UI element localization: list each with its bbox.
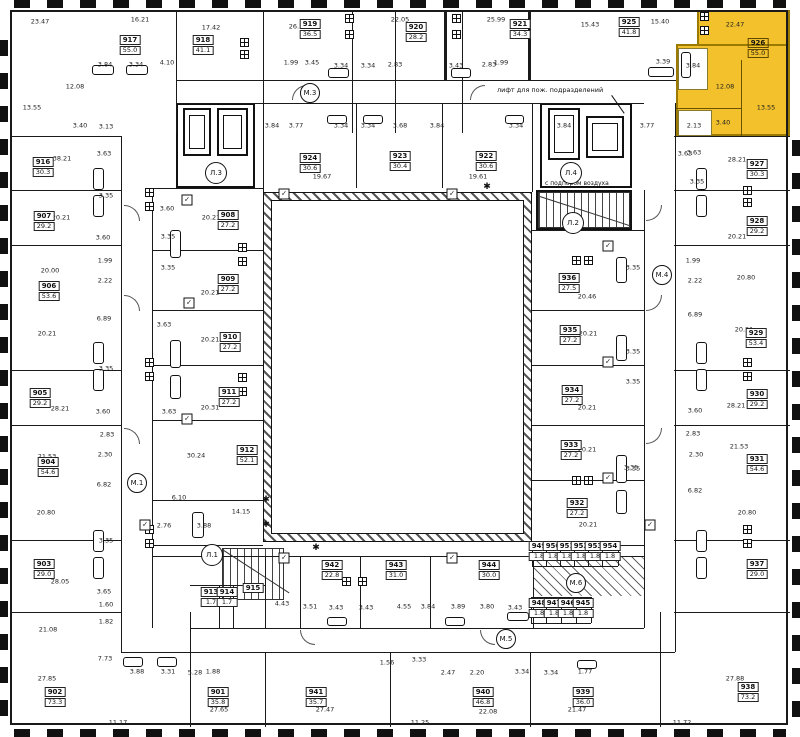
stove-icon xyxy=(238,257,247,266)
stove-icon xyxy=(743,372,752,381)
unit-label-917[interactable]: 91755.0 xyxy=(120,35,141,55)
room-area: 20.80 xyxy=(737,275,756,282)
unit-area: 27.2 xyxy=(561,451,582,460)
unit-label-934[interactable]: 93427.2 xyxy=(562,385,583,405)
unit-label-901[interactable]: 90135.8 xyxy=(208,687,229,707)
stove-icon xyxy=(145,539,154,548)
bathtub-icon xyxy=(123,657,143,667)
room-area: 6.89 xyxy=(688,312,702,319)
unit-label-954[interactable]: 9541.8 xyxy=(600,541,621,561)
room-area: 3.89 xyxy=(451,604,465,611)
room-area: 30.24 xyxy=(187,453,206,460)
unit-label-921[interactable]: 92134.3 xyxy=(510,19,531,39)
stove-icon xyxy=(572,256,581,265)
wall-segment xyxy=(176,80,676,81)
unit-label-906[interactable]: 90653.6 xyxy=(39,281,60,301)
unit-area: 55.0 xyxy=(120,46,141,55)
unit-area: 31.0 xyxy=(386,571,407,580)
unit-label-945[interactable]: 9451.8 xyxy=(573,598,594,618)
room-area: 3.80 xyxy=(480,604,494,611)
unit-label-929[interactable]: 92953.4 xyxy=(746,328,767,348)
room-area: 3.43 xyxy=(329,605,343,612)
room-area: 3.77 xyxy=(289,123,303,130)
unit-label-925[interactable]: 92541.8 xyxy=(619,17,640,37)
m-mark-М-5: М.5 xyxy=(496,629,516,649)
room-area: 3.13 xyxy=(99,124,113,131)
unit-area: 41.8 xyxy=(619,28,640,37)
unit-number: 932 xyxy=(567,498,588,508)
room-area: 3.84 xyxy=(686,63,700,70)
unit-label-923[interactable]: 92330.4 xyxy=(390,151,411,171)
room-area: 1.77 xyxy=(578,669,592,676)
room-area: 3.65 xyxy=(97,589,111,596)
room-area: 20.21 xyxy=(578,405,597,412)
unit-label-936[interactable]: 93627.5 xyxy=(559,273,580,293)
unit-number: 941 xyxy=(306,687,327,697)
unit-label-916[interactable]: 91630.3 xyxy=(33,157,54,177)
unit-area: 54.6 xyxy=(38,468,59,477)
bathtub-icon xyxy=(451,68,471,78)
wall-segment xyxy=(674,136,790,137)
room-area: 7.73 xyxy=(98,656,112,663)
unit-number: 911 xyxy=(219,387,240,397)
room-area: 3.60 xyxy=(96,409,110,416)
unit-label-942[interactable]: 94222.8 xyxy=(322,560,343,580)
wall-segment xyxy=(674,540,790,541)
stove-icon xyxy=(743,539,752,548)
unit-area: 29.2 xyxy=(747,400,768,409)
unit-area: 27.2 xyxy=(219,398,240,407)
unit-number: 924 xyxy=(300,153,321,163)
unit-number: 903 xyxy=(34,559,55,569)
bathtub-icon xyxy=(445,617,465,626)
room-area: 1.56 xyxy=(380,660,394,667)
room-area: 16.21 xyxy=(131,17,150,24)
room-area: 4.55 xyxy=(397,604,411,611)
unit-number: 918 xyxy=(193,35,214,45)
courtyard-void xyxy=(271,200,524,534)
unit-number: 902 xyxy=(45,687,66,697)
room-area: 3.35 xyxy=(99,366,113,373)
unit-number: 910 xyxy=(220,332,241,342)
unit-label-910[interactable]: 91027.2 xyxy=(220,332,241,352)
stove-icon xyxy=(345,14,354,23)
room-area: 20.80 xyxy=(37,510,56,517)
wall-segment xyxy=(442,103,443,188)
m-mark-М-4: М.4 xyxy=(652,265,672,285)
m-mark-М-3: М.3 xyxy=(300,83,320,103)
room-area: 1.99 xyxy=(98,258,112,265)
stove-icon xyxy=(700,26,709,35)
wall-segment xyxy=(674,612,790,613)
unit-number: 912 xyxy=(237,445,258,455)
room-area: 3.43 xyxy=(359,605,373,612)
wall-segment xyxy=(152,188,263,189)
room-area: 3.60 xyxy=(688,408,702,415)
unit-label-922[interactable]: 92230.6 xyxy=(476,151,497,171)
room-area: 28.21 xyxy=(727,403,746,410)
unit-area: 27.2 xyxy=(218,221,239,230)
wall-segment xyxy=(356,103,357,188)
unit-area: 30.3 xyxy=(747,170,768,179)
unit-number: 945 xyxy=(573,598,594,608)
bathtub-icon xyxy=(696,530,707,552)
unit-number: 914 xyxy=(217,587,238,597)
wall-segment xyxy=(152,500,263,501)
stove-icon xyxy=(238,373,247,382)
unit-area: 1.7 xyxy=(217,598,238,607)
wall-segment xyxy=(360,556,361,628)
unit-area: 53.6 xyxy=(39,292,60,301)
unit-label-937[interactable]: 93729.0 xyxy=(747,559,768,579)
fire-elevator-note: лифт для пож. подразделений xyxy=(497,86,603,94)
window-ticks-top xyxy=(14,0,786,8)
stove-icon xyxy=(743,525,752,534)
room-area: 20.21 xyxy=(201,290,220,297)
asterisk-icon: ✱ xyxy=(483,182,491,192)
bathtub-icon xyxy=(648,67,674,77)
unit-label-932[interactable]: 93227.2 xyxy=(567,498,588,518)
unit-area: 22.8 xyxy=(322,571,343,580)
room-area: 20.21 xyxy=(38,331,57,338)
wall-segment xyxy=(152,310,263,311)
unit-area: 27.2 xyxy=(567,509,588,518)
room-area: 23.47 xyxy=(31,19,50,26)
unit-label-933[interactable]: 93327.2 xyxy=(561,440,582,460)
unit-number: 917 xyxy=(120,35,141,45)
stove-icon xyxy=(145,202,154,211)
unit-number: 927 xyxy=(747,159,768,169)
wall-segment xyxy=(532,188,533,192)
wall-segment xyxy=(675,103,676,652)
stair-mark-Л-3: Л.3 xyxy=(205,162,227,184)
room-area: 3.43 xyxy=(449,63,463,70)
room-area: 11.25 xyxy=(411,720,430,727)
wall-segment xyxy=(10,425,121,426)
unit-label-908[interactable]: 90827.2 xyxy=(218,210,239,230)
room-area: 3.35 xyxy=(626,379,640,386)
unit-number: 937 xyxy=(747,559,768,569)
bathtub-icon xyxy=(507,612,529,621)
bathtub-icon xyxy=(696,342,707,364)
room-area: 2.13 xyxy=(687,123,701,130)
unit-area: 34.3 xyxy=(510,30,531,39)
room-area: 20.21 xyxy=(728,234,747,241)
room-area: 22.08 xyxy=(479,709,498,716)
room-area: 3.34 xyxy=(515,669,529,676)
room-area: 3.34 xyxy=(334,63,348,70)
room-area: 2.47 xyxy=(441,670,455,677)
room-area: 6.82 xyxy=(688,488,702,495)
check-icon: ✓ xyxy=(603,357,614,368)
wall-segment xyxy=(674,425,790,426)
room-area: 3.84 xyxy=(430,123,444,130)
window-ticks-bottom xyxy=(14,729,786,737)
unit-number: 934 xyxy=(562,385,583,395)
wall-segment xyxy=(674,190,790,191)
room-area: 20.80 xyxy=(738,510,757,517)
room-area: 20.31 xyxy=(201,405,220,412)
stove-icon xyxy=(452,30,461,39)
wall-segment xyxy=(352,10,353,133)
room-area: 38.21 xyxy=(53,156,72,163)
unit-label-919[interactable]: 91936.5 xyxy=(300,19,321,39)
check-icon: ✓ xyxy=(279,189,290,200)
wall-segment xyxy=(531,623,591,624)
wall-segment xyxy=(644,190,645,628)
unit-number: 943 xyxy=(386,560,407,570)
unit-area: 27.2 xyxy=(218,285,239,294)
unit-label-927[interactable]: 92730.3 xyxy=(747,159,768,179)
room-area: 3.84 xyxy=(557,123,571,130)
room-area: 3.68 xyxy=(393,123,407,130)
check-icon: ✓ xyxy=(184,298,195,309)
room-area: 20.46 xyxy=(578,294,597,301)
unit-number: 942 xyxy=(322,560,343,570)
unit-label-912[interactable]: 91252.1 xyxy=(237,445,258,465)
stove-icon xyxy=(145,188,154,197)
stair-mark-Л-4: Л.4 xyxy=(560,162,582,184)
asterisk-icon: ✱ xyxy=(262,495,270,505)
room-area: 28.21 xyxy=(51,406,70,413)
unit-label-941[interactable]: 94135.7 xyxy=(306,687,327,707)
check-icon: ✓ xyxy=(140,520,151,531)
bathtub-icon xyxy=(93,342,104,364)
stove-icon xyxy=(743,198,752,207)
room-area: 15.40 xyxy=(651,19,670,26)
unit-area: 30.6 xyxy=(300,164,321,173)
room-area: 3.51 xyxy=(303,604,317,611)
room-area: 1.99 xyxy=(284,60,298,67)
stair-mark-Л-2: Л.2 xyxy=(562,212,584,234)
room-area: 3.34 xyxy=(129,62,143,69)
room-area: 3.45 xyxy=(305,60,319,67)
wall-segment xyxy=(444,10,447,80)
unit-area: 1.8 xyxy=(600,552,621,561)
wall-segment xyxy=(121,136,122,652)
room-area: 2.83 xyxy=(388,62,402,69)
unit-number: 922 xyxy=(476,151,497,161)
bathtub-icon xyxy=(696,557,707,579)
room-area: 5.28 xyxy=(188,670,202,677)
unit-label-911[interactable]: 91127.2 xyxy=(219,387,240,407)
room-area: 2.30 xyxy=(689,452,703,459)
unit-label-928[interactable]: 92829.2 xyxy=(747,216,768,236)
unit-area: 36.0 xyxy=(573,698,594,707)
room-area: 3.40 xyxy=(73,123,87,130)
unit-label-920[interactable]: 92028.2 xyxy=(406,22,427,42)
unit-label-944[interactable]: 94430.0 xyxy=(479,560,500,580)
wall-segment xyxy=(532,310,644,311)
unit-label-940[interactable]: 94046.8 xyxy=(473,687,494,707)
room-area: 1.99 xyxy=(686,258,700,265)
unit-number: 909 xyxy=(218,274,239,284)
room-area: 27.47 xyxy=(316,707,335,714)
window-ticks-left xyxy=(0,40,8,730)
room-area: 20.21 xyxy=(579,331,598,338)
check-icon: ✓ xyxy=(279,553,290,564)
wall-segment xyxy=(263,188,264,192)
room-area: 3.60 xyxy=(160,206,174,213)
room-area: 2.22 xyxy=(688,278,702,285)
unit-label-905[interactable]: 90529.2 xyxy=(30,388,51,408)
wall-segment xyxy=(10,136,121,137)
wall-segment xyxy=(532,365,644,366)
room-area: 21.47 xyxy=(568,707,587,714)
room-area: 3.34 xyxy=(544,670,558,677)
room-area: 3.35 xyxy=(624,465,638,472)
wall-segment xyxy=(532,566,618,567)
bathtub-icon xyxy=(157,657,177,667)
wall-segment xyxy=(530,652,531,727)
unit-number: 931 xyxy=(747,454,768,464)
unit-label-931[interactable]: 93154.6 xyxy=(747,454,768,474)
unit-area: 29.2 xyxy=(747,227,768,236)
bathtub-icon xyxy=(170,340,181,368)
unit-area: 29.0 xyxy=(747,570,768,579)
asterisk-icon: ✱ xyxy=(262,520,270,530)
bathtub-icon xyxy=(93,557,104,579)
unit-label-914[interactable]: 9141.7 xyxy=(217,587,238,607)
unit-area: 46.8 xyxy=(473,698,494,707)
room-area: 2.83 xyxy=(100,432,114,439)
unit-number: 944 xyxy=(479,560,500,570)
wall-segment xyxy=(121,652,675,653)
room-area: 27.85 xyxy=(38,676,57,683)
room-area: 3.84 xyxy=(98,62,112,69)
room-area: 20.21 xyxy=(52,215,71,222)
wall-segment xyxy=(190,628,644,629)
unit-number: 920 xyxy=(406,22,427,32)
room-area: 1.60 xyxy=(99,602,113,609)
unit-number: 905 xyxy=(30,388,51,398)
unit-label-918[interactable]: 91841.1 xyxy=(193,35,214,55)
unit-label-907[interactable]: 90729.2 xyxy=(34,211,55,231)
room-area: 3.34 xyxy=(334,123,348,130)
room-area: 3.35 xyxy=(99,538,113,545)
room-area: 3.88 xyxy=(130,669,144,676)
unit-label-930[interactable]: 93029.2 xyxy=(747,389,768,409)
wall-segment xyxy=(395,10,396,133)
unit-number: 907 xyxy=(34,211,55,221)
room-area: 3.35 xyxy=(626,265,640,272)
unit-number: 954 xyxy=(600,541,621,551)
wall-segment xyxy=(265,556,266,628)
check-icon: ✓ xyxy=(645,520,656,531)
unit-number: 901 xyxy=(208,687,229,697)
stove-icon xyxy=(584,476,593,485)
stove-icon xyxy=(145,358,154,367)
wall-segment xyxy=(10,245,121,246)
room-area: 6.89 xyxy=(97,316,111,323)
unit-label-935[interactable]: 93527.2 xyxy=(560,325,581,345)
stove-icon xyxy=(240,50,249,59)
bathtub-icon xyxy=(170,375,181,399)
unit-area: 30.0 xyxy=(479,571,500,580)
room-area: 3.31 xyxy=(161,669,175,676)
unit-number: 904 xyxy=(38,457,59,467)
stove-icon xyxy=(358,577,367,586)
courtyard xyxy=(263,192,532,542)
wall-segment xyxy=(532,103,533,192)
room-area: 13.55 xyxy=(23,105,42,112)
unit-label-902[interactable]: 90273.3 xyxy=(45,687,66,707)
unit-area: 27.2 xyxy=(562,396,583,405)
room-area: 14.15 xyxy=(232,509,251,516)
room-area: 3.35 xyxy=(626,349,640,356)
room-area: 3.35 xyxy=(161,265,175,272)
unit-number: 940 xyxy=(473,687,494,697)
room-area: 4.10 xyxy=(160,60,174,67)
room-area: 2.30 xyxy=(98,452,112,459)
unit-number: 919 xyxy=(300,19,321,29)
room-area: 21.08 xyxy=(39,627,58,634)
unit-label-909[interactable]: 90927.2 xyxy=(218,274,239,294)
bathtub-icon xyxy=(696,369,707,391)
unit-label-939[interactable]: 93936.0 xyxy=(573,687,594,707)
unit-number: 923 xyxy=(390,151,411,161)
room-area: 3.39 xyxy=(656,59,670,66)
unit-number: 908 xyxy=(218,210,239,220)
unit-number: 929 xyxy=(746,328,767,338)
stove-icon xyxy=(345,30,354,39)
room-area: 3.40 xyxy=(716,120,730,127)
wall-segment xyxy=(152,420,263,421)
elevator-shaft xyxy=(548,108,580,160)
unit-number: 936 xyxy=(559,273,580,283)
stove-icon xyxy=(238,387,247,396)
unit-label-915[interactable]: 915 xyxy=(243,583,264,593)
wall-segment xyxy=(10,612,121,613)
unit-label-904[interactable]: 90454.6 xyxy=(38,457,59,477)
stove-icon xyxy=(240,38,249,47)
unit-area: 52.1 xyxy=(237,456,258,465)
unit-number: 925 xyxy=(619,17,640,27)
room-area: 2.22 xyxy=(98,278,112,285)
stove-icon xyxy=(572,476,581,485)
wall-segment xyxy=(176,10,177,133)
m-mark-М-1: М.1 xyxy=(127,473,147,493)
unit-label-926[interactable]: 92655.0 xyxy=(748,38,769,58)
room-area: 2.83 xyxy=(686,431,700,438)
unit-number: 928 xyxy=(747,216,768,226)
unit-area: 35.7 xyxy=(306,698,327,707)
room-area: 11.72 xyxy=(673,720,692,727)
check-icon: ✓ xyxy=(182,414,193,425)
unit-number: 939 xyxy=(573,687,594,697)
floor-plan: лифт для пож. подразделений с подпором в… xyxy=(0,0,800,737)
elevator-shaft xyxy=(586,116,624,158)
unit-area: 30.4 xyxy=(390,162,411,171)
room-area: 27.65 xyxy=(210,707,229,714)
unit-label-903[interactable]: 90329.0 xyxy=(34,559,55,579)
unit-area: 54.6 xyxy=(747,465,768,474)
room-area: 22.47 xyxy=(726,22,745,29)
window-ticks-right xyxy=(792,140,800,730)
unit-label-943[interactable]: 94331.0 xyxy=(386,560,407,580)
unit-label-924[interactable]: 92430.6 xyxy=(300,153,321,173)
unit-number: 933 xyxy=(561,440,582,450)
room-area: 19.67 xyxy=(313,174,332,181)
room-area: 12.08 xyxy=(66,84,85,91)
unit-label-938[interactable]: 93873.2 xyxy=(738,682,759,702)
room-area: 3.84 xyxy=(421,604,435,611)
wall-segment xyxy=(674,370,790,371)
unit-area: 29.2 xyxy=(34,222,55,231)
bathtub-icon xyxy=(327,617,347,626)
bathtub-icon xyxy=(696,195,707,217)
room-area: 15.43 xyxy=(581,22,600,29)
